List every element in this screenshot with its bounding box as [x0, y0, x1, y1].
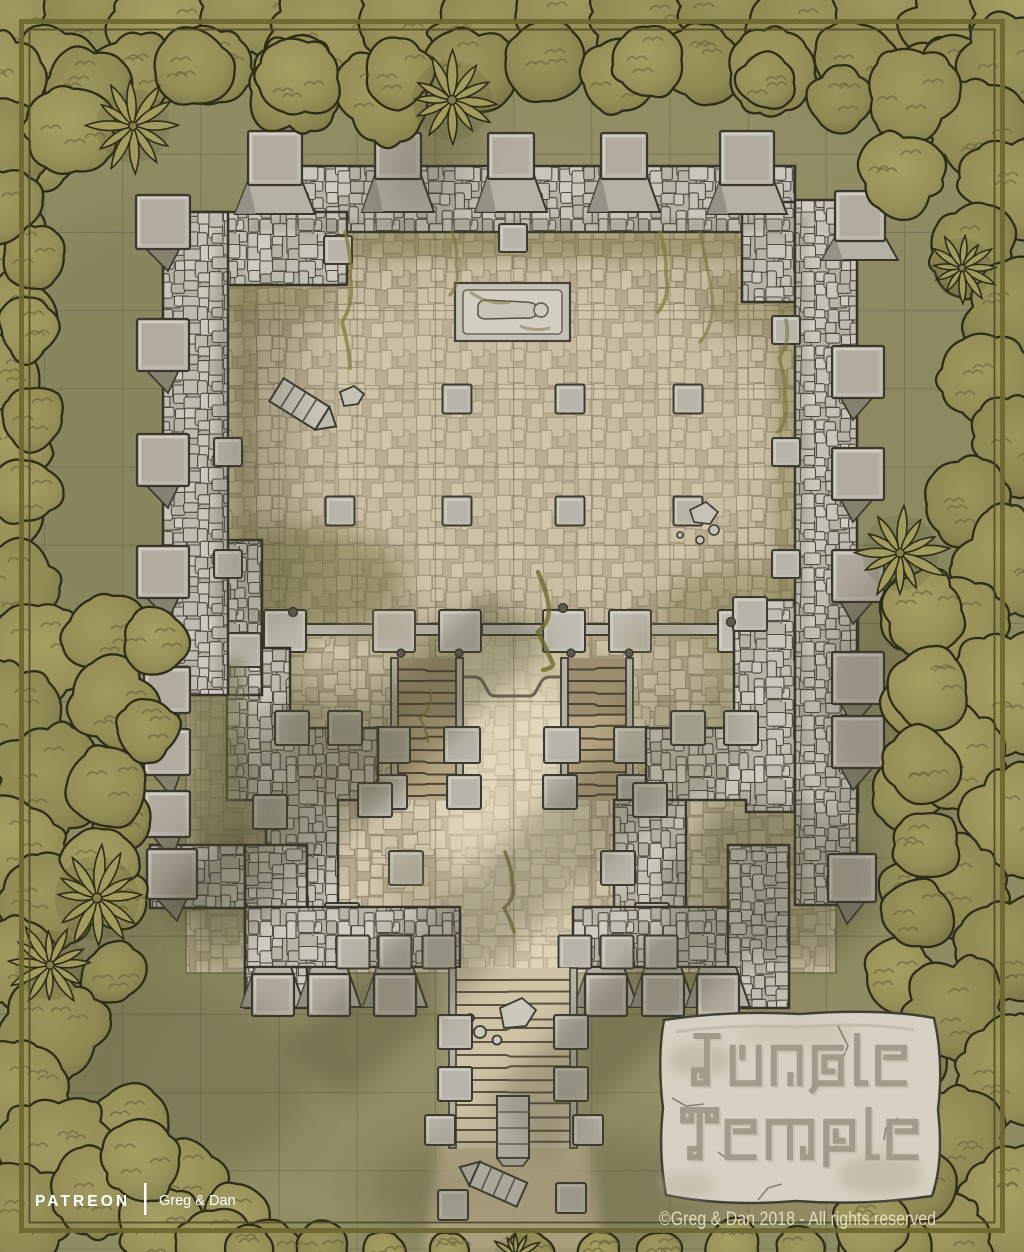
svg-text:Greg & Dan: Greg & Dan	[159, 1193, 236, 1209]
svg-text:©Greg & Dan 2018 - All rights: ©Greg & Dan 2018 - All rights reserved	[659, 1208, 936, 1230]
svg-text:PATREON: PATREON	[35, 1193, 130, 1210]
